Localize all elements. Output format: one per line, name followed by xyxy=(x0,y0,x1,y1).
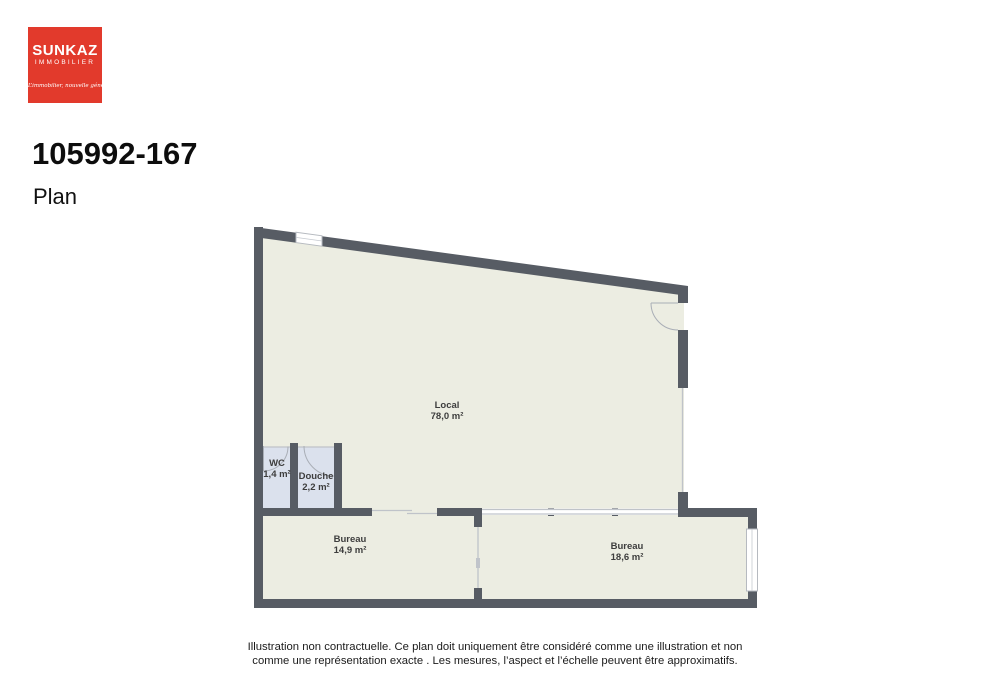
disclaimer: Illustration non contractuelle. Ce plan … xyxy=(0,641,990,668)
disclaimer-line-1: Illustration non contractuelle. Ce plan … xyxy=(0,641,990,655)
floorplan: Local 78,0 m² WC 1,4 m² Douche 2,2 m² Bu… xyxy=(0,0,990,700)
room-area-local: 78,0 m² xyxy=(431,411,464,422)
wall-interior-a xyxy=(263,508,372,516)
bureau-partition-tick xyxy=(476,558,480,568)
wall-partition-stub-top xyxy=(474,514,482,527)
disclaimer-line-2: comme une représentation exacte . Les me… xyxy=(0,655,990,669)
room-area-douche: 2,2 m² xyxy=(302,482,329,493)
wall-right-mid xyxy=(678,330,688,388)
room-area-wc: 1,4 m² xyxy=(263,469,290,480)
room-area-bureau-right: 18,6 m² xyxy=(611,552,644,563)
wall-right-lower xyxy=(678,492,688,509)
room-label-bureau-left: Bureau xyxy=(334,534,367,545)
wall-bureau-right-top xyxy=(748,508,757,529)
wall-step-horizontal xyxy=(678,508,757,517)
wall-partition-stub-bottom xyxy=(474,588,482,600)
wall-wc-douche-divider xyxy=(290,443,298,508)
wall-bottom xyxy=(254,599,757,608)
wall-right-upper xyxy=(678,288,688,303)
room-label-douche: Douche xyxy=(299,471,334,482)
room-label-local: Local xyxy=(435,400,460,411)
room-area-bureau-left: 14,9 m² xyxy=(334,545,367,556)
room-label-wc: WC xyxy=(269,458,285,469)
room-label-bureau-right: Bureau xyxy=(611,541,644,552)
wall-douche-right xyxy=(334,443,342,508)
wall-left xyxy=(254,227,263,608)
